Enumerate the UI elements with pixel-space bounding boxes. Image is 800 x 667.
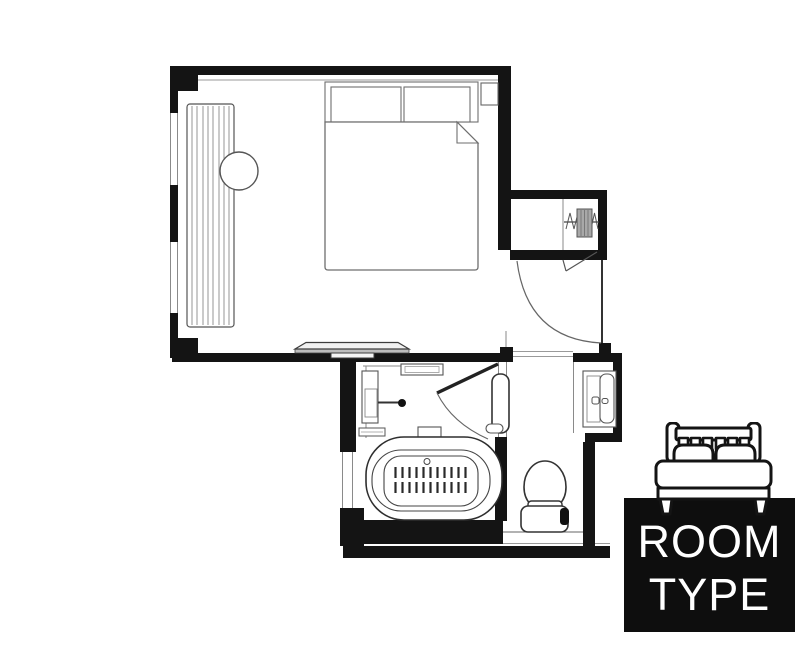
wall-right <box>498 66 511 250</box>
wall-left-seg2 <box>170 185 178 242</box>
wall-toilet-right <box>583 442 595 547</box>
curtain-blinds <box>187 104 234 327</box>
bathroom-door-arc <box>437 393 488 439</box>
bathtub <box>366 437 502 520</box>
tub-mat-row1 <box>390 466 470 480</box>
faucet-knob <box>398 399 406 407</box>
double-bed <box>325 82 478 270</box>
pillow-left <box>331 87 401 122</box>
room-type-card: ROOM TYPE <box>624 498 795 632</box>
room-type-label-line2: TYPE <box>624 572 795 618</box>
wall-bath-left-upper <box>340 357 356 452</box>
closet-wall-right <box>598 190 607 260</box>
wall-bottom-cap <box>500 347 513 362</box>
floorplan-page: ROOM TYPE <box>0 0 800 667</box>
tub-mat-row2 <box>390 481 470 497</box>
pillow-right <box>404 87 470 122</box>
toilet <box>521 461 569 532</box>
round-side-table <box>220 152 258 190</box>
tub-drain <box>424 459 430 465</box>
bed-leg-right <box>755 499 767 514</box>
wall-tub-south <box>340 520 503 544</box>
wall-sink <box>362 371 406 423</box>
toilet-lever <box>560 508 569 525</box>
towel-bar <box>359 428 385 436</box>
closet-hangers <box>564 209 599 237</box>
room-type-label-line1: ROOM <box>624 519 795 565</box>
bed-leg-left <box>660 499 672 514</box>
bathroom-door-leaf <box>437 364 498 393</box>
bed-body <box>325 122 478 270</box>
tub-faucet-panel <box>418 427 441 437</box>
niche-wall-bottom <box>585 433 622 442</box>
wall-bottom-exterior <box>343 546 610 558</box>
closet-wall-top <box>508 190 607 199</box>
hand-shower <box>486 424 503 433</box>
wall-top <box>172 66 508 75</box>
vanity-basin <box>583 371 616 427</box>
double-bed-icon <box>652 422 775 517</box>
mattress <box>656 461 771 488</box>
nightstand <box>481 83 498 105</box>
entry-door-arc <box>517 261 601 343</box>
wall-bath-left-lower <box>340 508 364 546</box>
bath-shelf <box>401 364 443 375</box>
bed-base <box>658 488 769 499</box>
folded-sheet-corner <box>457 122 478 143</box>
entry-door <box>517 260 602 343</box>
wall-left-seg1 <box>170 66 178 113</box>
